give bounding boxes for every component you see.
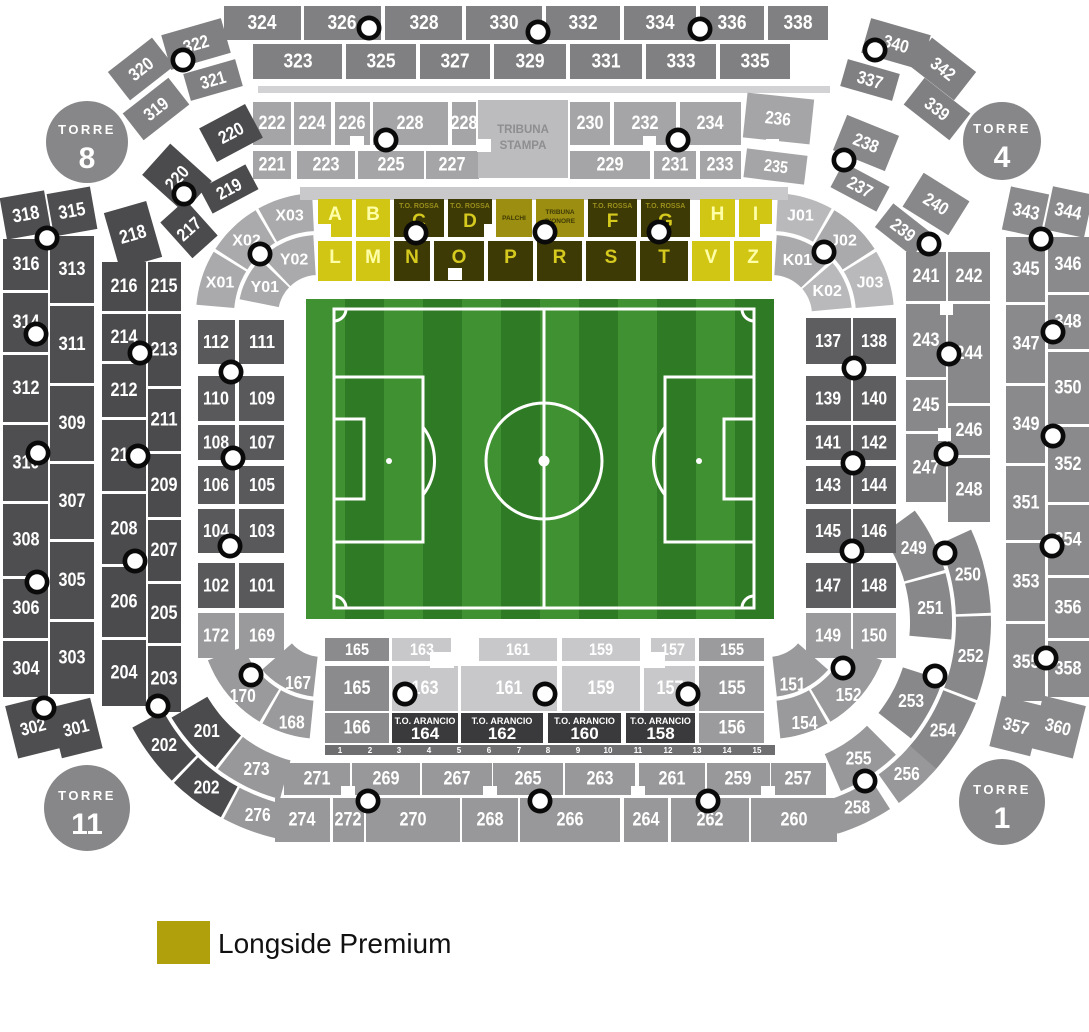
svg-text:203: 203	[151, 669, 178, 690]
svg-text:334: 334	[646, 12, 676, 34]
svg-text:264: 264	[633, 810, 660, 831]
svg-text:K02: K02	[813, 283, 842, 300]
svg-text:306: 306	[13, 598, 40, 619]
svg-text:267: 267	[444, 769, 471, 790]
svg-text:201: 201	[194, 721, 220, 741]
svg-text:Y02: Y02	[280, 252, 309, 269]
svg-text:172: 172	[203, 626, 229, 646]
svg-text:7: 7	[517, 746, 522, 755]
svg-text:H: H	[711, 204, 725, 225]
svg-text:331: 331	[592, 51, 621, 73]
svg-text:P: P	[504, 247, 517, 268]
svg-text:F: F	[607, 211, 619, 232]
svg-text:221: 221	[259, 155, 286, 176]
svg-text:305: 305	[59, 570, 86, 591]
svg-text:255: 255	[846, 749, 872, 769]
svg-text:246: 246	[956, 420, 983, 441]
svg-text:268: 268	[477, 810, 504, 831]
svg-text:112: 112	[203, 332, 229, 352]
svg-text:8: 8	[79, 142, 96, 175]
svg-text:11: 11	[71, 808, 103, 841]
svg-text:161: 161	[496, 678, 523, 699]
svg-text:335: 335	[741, 51, 770, 73]
svg-text:223: 223	[313, 155, 340, 176]
svg-text:328: 328	[410, 12, 439, 34]
svg-text:Z: Z	[747, 247, 759, 268]
svg-text:4: 4	[994, 141, 1011, 174]
svg-text:9: 9	[576, 746, 581, 755]
svg-text:270: 270	[400, 810, 427, 831]
svg-text:106: 106	[203, 475, 229, 495]
svg-text:151: 151	[780, 675, 806, 695]
svg-text:A: A	[328, 204, 342, 225]
svg-text:327: 327	[441, 51, 470, 73]
svg-text:TORRE: TORRE	[58, 788, 116, 803]
svg-text:236: 236	[764, 107, 792, 130]
svg-text:10: 10	[604, 746, 613, 755]
svg-text:350: 350	[1055, 378, 1082, 399]
svg-text:250: 250	[955, 564, 981, 584]
svg-text:226: 226	[339, 113, 366, 134]
svg-text:213: 213	[151, 340, 178, 361]
svg-text:TORRE: TORRE	[973, 782, 1031, 797]
svg-text:J01: J01	[787, 208, 814, 225]
svg-text:155: 155	[720, 640, 744, 659]
svg-text:T.O. ROSSA: T.O. ROSSA	[399, 203, 439, 210]
svg-text:211: 211	[151, 410, 178, 431]
svg-text:303: 303	[59, 648, 86, 669]
svg-text:352: 352	[1055, 454, 1082, 475]
svg-text:356: 356	[1055, 598, 1082, 619]
svg-text:162: 162	[488, 724, 516, 743]
svg-text:L: L	[329, 247, 341, 268]
svg-text:138: 138	[861, 331, 887, 351]
svg-text:T.O. ROSSA: T.O. ROSSA	[593, 203, 633, 210]
svg-text:167: 167	[285, 673, 311, 693]
svg-text:309: 309	[59, 413, 86, 434]
svg-text:105: 105	[249, 475, 275, 495]
svg-text:329: 329	[516, 51, 545, 73]
svg-text:159: 159	[589, 640, 613, 659]
svg-text:235: 235	[763, 156, 789, 178]
svg-text:205: 205	[151, 603, 178, 624]
svg-text:228: 228	[397, 113, 424, 134]
svg-text:242: 242	[956, 266, 983, 287]
svg-text:165: 165	[345, 640, 369, 659]
svg-text:15: 15	[753, 746, 762, 755]
svg-text:156: 156	[719, 718, 746, 739]
svg-text:260: 260	[781, 810, 808, 831]
svg-text:252: 252	[958, 646, 984, 666]
svg-text:161: 161	[506, 640, 530, 659]
svg-text:101: 101	[249, 576, 275, 596]
svg-text:STAMPA: STAMPA	[500, 140, 547, 152]
svg-text:159: 159	[588, 678, 615, 699]
svg-text:147: 147	[815, 576, 841, 596]
svg-text:107: 107	[249, 433, 275, 453]
svg-text:326: 326	[328, 12, 357, 34]
svg-text:4: 4	[427, 746, 432, 755]
svg-text:T.O. ROSSA: T.O. ROSSA	[646, 203, 686, 210]
svg-text:140: 140	[861, 389, 887, 409]
svg-text:8: 8	[546, 746, 551, 755]
svg-text:D: D	[463, 211, 477, 232]
svg-text:313: 313	[59, 259, 86, 280]
svg-text:X03: X03	[275, 208, 304, 225]
svg-text:271: 271	[304, 769, 331, 790]
svg-text:231: 231	[662, 155, 689, 176]
svg-text:3: 3	[397, 746, 402, 755]
svg-text:253: 253	[898, 691, 924, 711]
svg-text:207: 207	[151, 540, 178, 561]
svg-text:139: 139	[815, 389, 841, 409]
svg-text:110: 110	[203, 389, 229, 409]
svg-text:155: 155	[719, 678, 746, 699]
svg-text:249: 249	[901, 538, 927, 558]
svg-text:149: 149	[815, 626, 841, 646]
svg-text:170: 170	[230, 686, 256, 706]
svg-text:324: 324	[248, 12, 278, 34]
svg-text:166: 166	[344, 718, 371, 739]
svg-text:263: 263	[587, 769, 614, 790]
svg-text:1: 1	[338, 746, 343, 755]
svg-text:349: 349	[1013, 414, 1040, 435]
svg-text:261: 261	[659, 769, 686, 790]
svg-text:257: 257	[785, 769, 812, 790]
svg-text:K01: K01	[783, 252, 812, 269]
svg-text:13: 13	[693, 746, 702, 755]
svg-text:148: 148	[861, 576, 887, 596]
svg-text:243: 243	[913, 330, 940, 351]
svg-text:150: 150	[861, 626, 887, 646]
svg-text:245: 245	[913, 395, 940, 416]
svg-text:347: 347	[1013, 334, 1040, 355]
svg-text:1: 1	[994, 802, 1011, 835]
svg-text:M: M	[365, 247, 381, 268]
svg-text:143: 143	[815, 475, 841, 495]
svg-text:276: 276	[245, 805, 271, 825]
svg-text:225: 225	[378, 155, 405, 176]
svg-text:V: V	[705, 247, 718, 268]
svg-text:265: 265	[515, 769, 542, 790]
svg-text:169: 169	[249, 626, 275, 646]
svg-text:S: S	[605, 247, 618, 268]
svg-text:I: I	[753, 204, 758, 225]
svg-text:222: 222	[259, 113, 286, 134]
svg-text:202: 202	[151, 735, 177, 755]
svg-text:333: 333	[667, 51, 696, 73]
svg-text:272: 272	[335, 810, 362, 831]
svg-text:232: 232	[632, 113, 659, 134]
svg-text:B: B	[366, 204, 380, 225]
svg-text:N: N	[405, 247, 419, 268]
svg-text:353: 353	[1013, 572, 1040, 593]
svg-text:316: 316	[13, 254, 40, 275]
svg-text:307: 307	[59, 491, 86, 512]
svg-text:346: 346	[1055, 254, 1082, 275]
svg-text:137: 137	[815, 331, 841, 351]
svg-text:332: 332	[569, 12, 598, 34]
svg-text:R: R	[553, 247, 567, 268]
svg-text:312: 312	[13, 378, 40, 399]
svg-text:330: 330	[490, 12, 519, 34]
svg-text:351: 351	[1013, 493, 1040, 514]
svg-text:160: 160	[570, 724, 598, 743]
svg-text:209: 209	[151, 475, 178, 496]
svg-text:208: 208	[111, 519, 138, 540]
svg-text:164: 164	[411, 724, 440, 743]
svg-text:145: 145	[815, 521, 841, 541]
svg-text:Y01: Y01	[251, 279, 280, 296]
svg-text:14: 14	[723, 746, 732, 755]
svg-text:141: 141	[815, 433, 841, 453]
svg-text:311: 311	[59, 334, 86, 355]
svg-text:230: 230	[577, 113, 604, 134]
svg-text:258: 258	[844, 797, 870, 817]
svg-text:259: 259	[725, 769, 752, 790]
svg-text:254: 254	[930, 720, 956, 740]
svg-text:204: 204	[111, 663, 138, 684]
svg-text:338: 338	[784, 12, 813, 34]
svg-text:256: 256	[894, 764, 920, 784]
svg-text:T: T	[658, 247, 670, 268]
svg-text:12: 12	[664, 746, 673, 755]
svg-text:251: 251	[917, 598, 943, 618]
svg-text:O: O	[452, 247, 467, 268]
svg-text:216: 216	[111, 276, 138, 297]
svg-text:Longside Premium: Longside Premium	[218, 928, 451, 959]
svg-text:323: 323	[284, 51, 313, 73]
svg-text:103: 103	[249, 521, 275, 541]
svg-text:234: 234	[697, 113, 724, 134]
svg-text:229: 229	[597, 155, 624, 176]
svg-text:248: 248	[956, 480, 983, 501]
svg-text:269: 269	[373, 769, 400, 790]
svg-text:241: 241	[913, 266, 940, 287]
svg-text:TORRE: TORRE	[973, 121, 1031, 136]
svg-text:274: 274	[289, 810, 316, 831]
svg-text:266: 266	[557, 810, 584, 831]
svg-text:168: 168	[279, 713, 305, 733]
svg-text:158: 158	[646, 724, 674, 743]
svg-text:144: 144	[861, 475, 887, 495]
svg-text:345: 345	[1013, 259, 1040, 280]
svg-text:325: 325	[367, 51, 396, 73]
svg-text:308: 308	[13, 530, 40, 551]
svg-text:233: 233	[707, 155, 734, 176]
svg-text:142: 142	[861, 433, 887, 453]
svg-text:215: 215	[151, 276, 178, 297]
svg-text:111: 111	[249, 332, 275, 352]
svg-text:X01: X01	[206, 275, 235, 292]
svg-text:146: 146	[861, 521, 887, 541]
svg-text:202: 202	[194, 777, 220, 797]
svg-text:165: 165	[344, 678, 371, 699]
svg-text:PALCHI: PALCHI	[502, 215, 526, 222]
svg-text:2: 2	[368, 746, 373, 755]
svg-text:11: 11	[634, 746, 643, 755]
svg-text:228: 228	[451, 113, 478, 134]
svg-text:TRIBUNA: TRIBUNA	[497, 124, 549, 136]
svg-text:336: 336	[718, 12, 747, 34]
svg-text:152: 152	[836, 685, 862, 705]
svg-text:224: 224	[299, 113, 326, 134]
svg-text:J03: J03	[857, 275, 884, 292]
svg-text:5: 5	[457, 746, 462, 755]
svg-text:109: 109	[249, 389, 275, 409]
svg-text:T.O. ROSSA: T.O. ROSSA	[450, 203, 490, 210]
svg-text:304: 304	[13, 659, 40, 680]
svg-text:358: 358	[1055, 659, 1082, 680]
svg-text:154: 154	[792, 713, 818, 733]
svg-text:6: 6	[487, 746, 492, 755]
svg-text:TRIBUNA: TRIBUNA	[545, 209, 575, 216]
svg-text:212: 212	[111, 380, 138, 401]
svg-text:TORRE: TORRE	[58, 122, 116, 137]
svg-text:273: 273	[244, 759, 270, 779]
svg-text:206: 206	[111, 592, 138, 613]
svg-text:227: 227	[439, 155, 466, 176]
svg-text:102: 102	[203, 576, 229, 596]
